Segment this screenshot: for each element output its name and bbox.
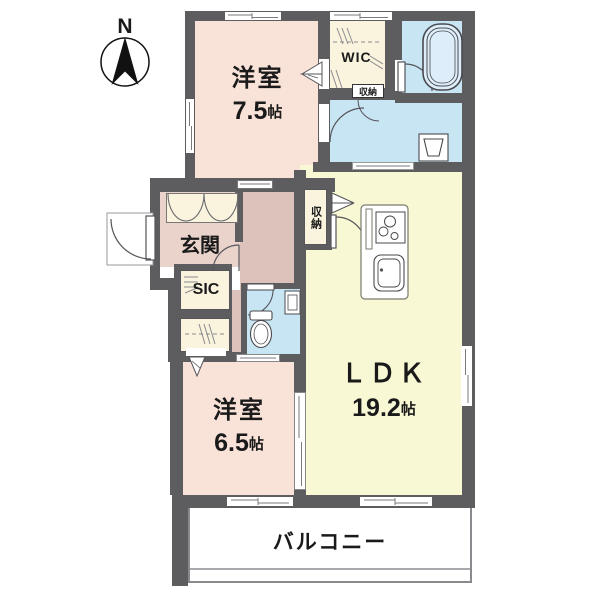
- closet-inner: [180, 318, 230, 352]
- window-wic-top: [330, 12, 392, 20]
- balcony-inner-line: [190, 568, 470, 570]
- wall-wic-east: [385, 21, 395, 88]
- room-western1-label: 洋室: [190, 58, 325, 92]
- room-western2-label: 洋室: [181, 390, 297, 424]
- balcony-label: バルコニー: [188, 526, 472, 556]
- compass-label: N: [110, 16, 140, 38]
- window-ldk-right: [461, 346, 472, 406]
- toilet-inner: [247, 289, 300, 354]
- storage-mini-label: 収納: [352, 84, 384, 98]
- washroom-floor: [320, 95, 462, 167]
- western2-door-opening: [236, 354, 280, 362]
- hall-floor: [240, 185, 300, 290]
- room-western2-size: 6.5帖: [181, 426, 297, 460]
- western2-size-number: 6.5: [214, 429, 249, 458]
- wall-right: [462, 11, 475, 508]
- western1-size-unit: 帖: [267, 101, 282, 122]
- ldk-size-unit: 帖: [401, 398, 416, 419]
- window-western1-top: [225, 12, 281, 20]
- window-western2-bottom: [227, 497, 293, 506]
- ldk-size: 19.2帖: [306, 391, 462, 425]
- wall-bath-bottom: [395, 93, 462, 103]
- closet-opening: [186, 348, 226, 356]
- entrance-door-icon: [107, 213, 155, 265]
- wic-label: WIC: [328, 47, 385, 67]
- storage-hall-label: 収納: [303, 195, 328, 241]
- western1-sliding-door: [237, 180, 273, 189]
- window-ldk-bottom: [360, 497, 432, 506]
- ldk-size-number: 19.2: [352, 394, 401, 423]
- north-arrow-icon: [101, 37, 149, 86]
- room-western1-size: 7.5帖: [190, 94, 325, 128]
- genkan-closet: [166, 193, 238, 223]
- genkan-label: 玄関: [158, 230, 242, 256]
- sic-label: SIC: [180, 279, 232, 301]
- bathroom-door-opening: [395, 60, 402, 91]
- floorplan: 収納: [0, 0, 600, 600]
- ldk-label: ＬＤＫ: [306, 353, 462, 389]
- western2-size-unit: 帖: [249, 433, 264, 454]
- western1-size-number: 7.5: [233, 97, 268, 126]
- wall-balcony-stub: [172, 508, 188, 586]
- window-washroom-counter: [352, 162, 414, 170]
